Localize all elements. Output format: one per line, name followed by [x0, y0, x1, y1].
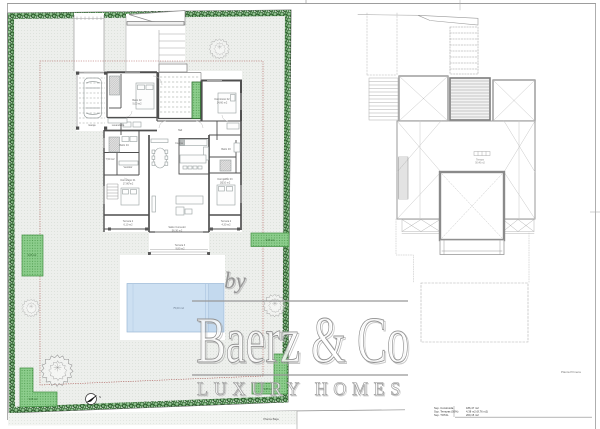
svg-text:Cocina: Cocina [175, 142, 183, 145]
svg-text:Baño 03: Baño 03 [221, 148, 231, 151]
svg-text:16,10 m2: 16,10 m2 [220, 182, 231, 185]
svg-text:Sup. Construida: Sup. Construida [434, 406, 454, 410]
svg-text:Sup. Terrazas (50%): Sup. Terrazas (50%) [434, 410, 459, 414]
svg-text:Lavandería: Lavandería [112, 124, 125, 127]
svg-text:9,05 m2: 9,05 m2 [266, 239, 275, 242]
svg-text:N: N [99, 395, 101, 399]
svg-text:Baño 04: Baño 04 [119, 144, 129, 147]
svg-text:9,80 m2: 9,80 m2 [175, 248, 185, 251]
svg-text:Planta Baja: Planta Baja [263, 417, 279, 421]
svg-text:7,50 m2: 7,50 m2 [105, 158, 115, 161]
svg-text:9,05 m2: 9,05 m2 [28, 254, 37, 257]
svg-text:6,10 m2: 6,10 m2 [123, 224, 133, 227]
svg-text:Baerz & Co: Baerz & Co [196, 304, 409, 377]
svg-text:Sup. TOTAL: Sup. TOTAL [434, 413, 449, 417]
svg-text:17,80 m2: 17,80 m2 [123, 183, 134, 186]
svg-text:200,15 m2: 200,15 m2 [466, 413, 479, 417]
svg-text:186,47 m2: 186,47 m2 [466, 406, 479, 410]
svg-text:9,05 m2: 9,05 m2 [29, 398, 38, 401]
svg-text:by: by [224, 268, 247, 293]
svg-text:75,00 m2: 75,00 m2 [173, 306, 184, 310]
svg-text:4,38 m2 (8,76 m2): 4,38 m2 (8,76 m2) [466, 410, 488, 414]
svg-text:5,00 m2: 5,00 m2 [132, 103, 142, 106]
svg-text:Planta Primera: Planta Primera [561, 370, 581, 374]
svg-text:56,30 m2: 56,30 m2 [172, 230, 183, 233]
svg-text:14,60 m2: 14,60 m2 [217, 102, 228, 105]
svg-text:Garaje: Garaje [88, 124, 96, 127]
svg-text:Vestidor: Vestidor [123, 166, 132, 169]
svg-text:LUXURY HOMES: LUXURY HOMES [197, 379, 406, 400]
svg-text:Hall: Hall [178, 129, 183, 132]
svg-text:4,30 m2: 4,30 m2 [221, 224, 231, 227]
svg-text:50,46 m2: 50,46 m2 [475, 163, 485, 165]
svg-text:Terraza: Terraza [476, 159, 484, 162]
